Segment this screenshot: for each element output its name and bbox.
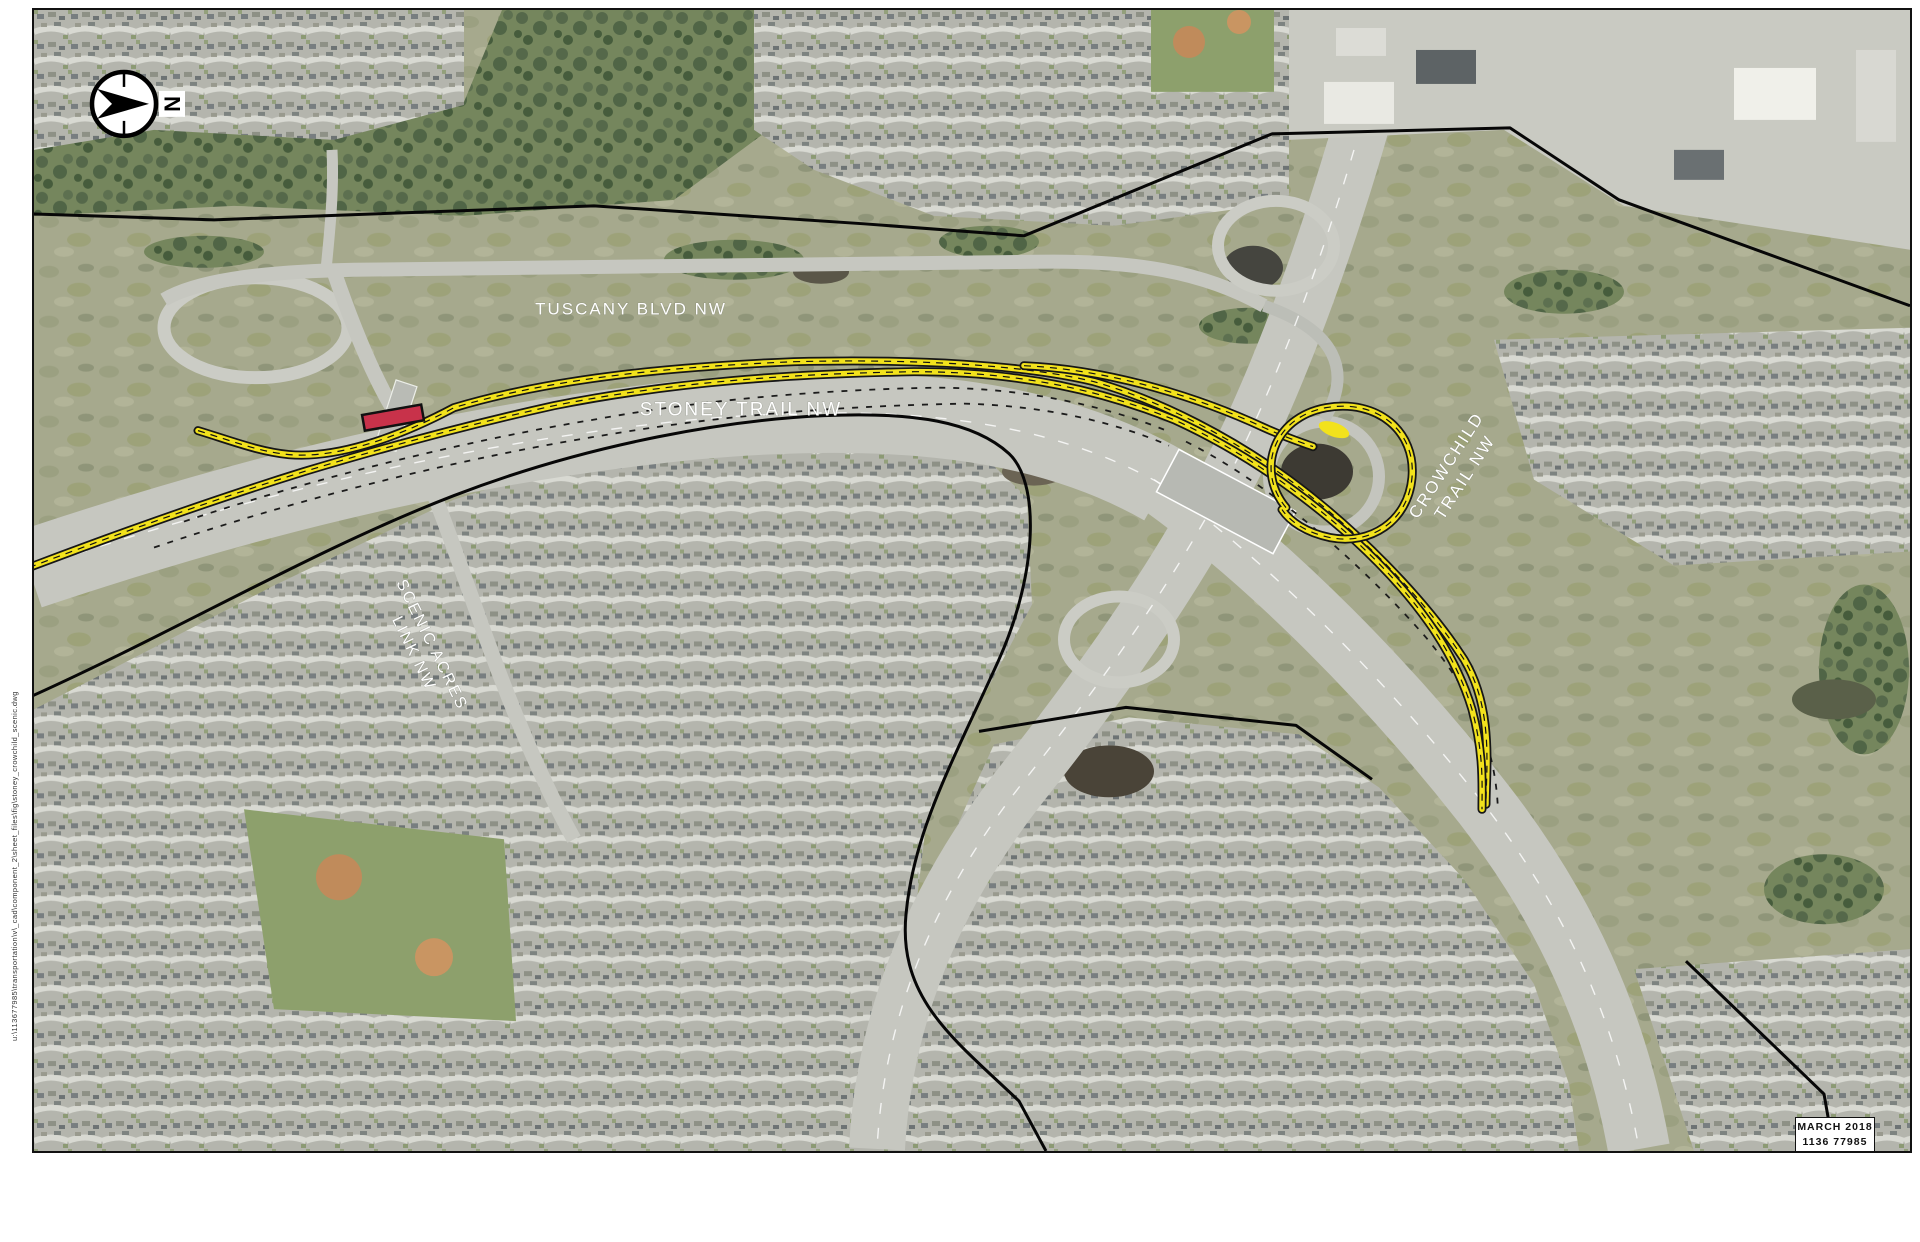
north-label: N (159, 96, 184, 112)
date-project-box: MARCH 2018 1136 77985 (1795, 1117, 1875, 1152)
title-block: Stantec 200-325 25th Street SE Calgary A… (0, 1153, 1920, 1242)
aerial-map: TUSCANY BLVD NW STONEY TRAIL NW CROWCHIL… (34, 10, 1910, 1151)
file-path-note: u:\113677985\transportation\v\_cad\compo… (10, 536, 19, 1041)
label-stoney-trail: STONEY TRAIL NW (640, 400, 842, 421)
project-number: 1136 77985 (1796, 1135, 1874, 1150)
label-tuscany-blvd: TUSCANY BLVD NW (535, 300, 727, 319)
map-canvas: TUSCANY BLVD NW STONEY TRAIL NW CROWCHIL… (32, 8, 1912, 1153)
drawing-sheet: u:\113677985\transportation\v\_cad\compo… (0, 0, 1920, 1242)
date-line: MARCH 2018 (1796, 1120, 1874, 1135)
